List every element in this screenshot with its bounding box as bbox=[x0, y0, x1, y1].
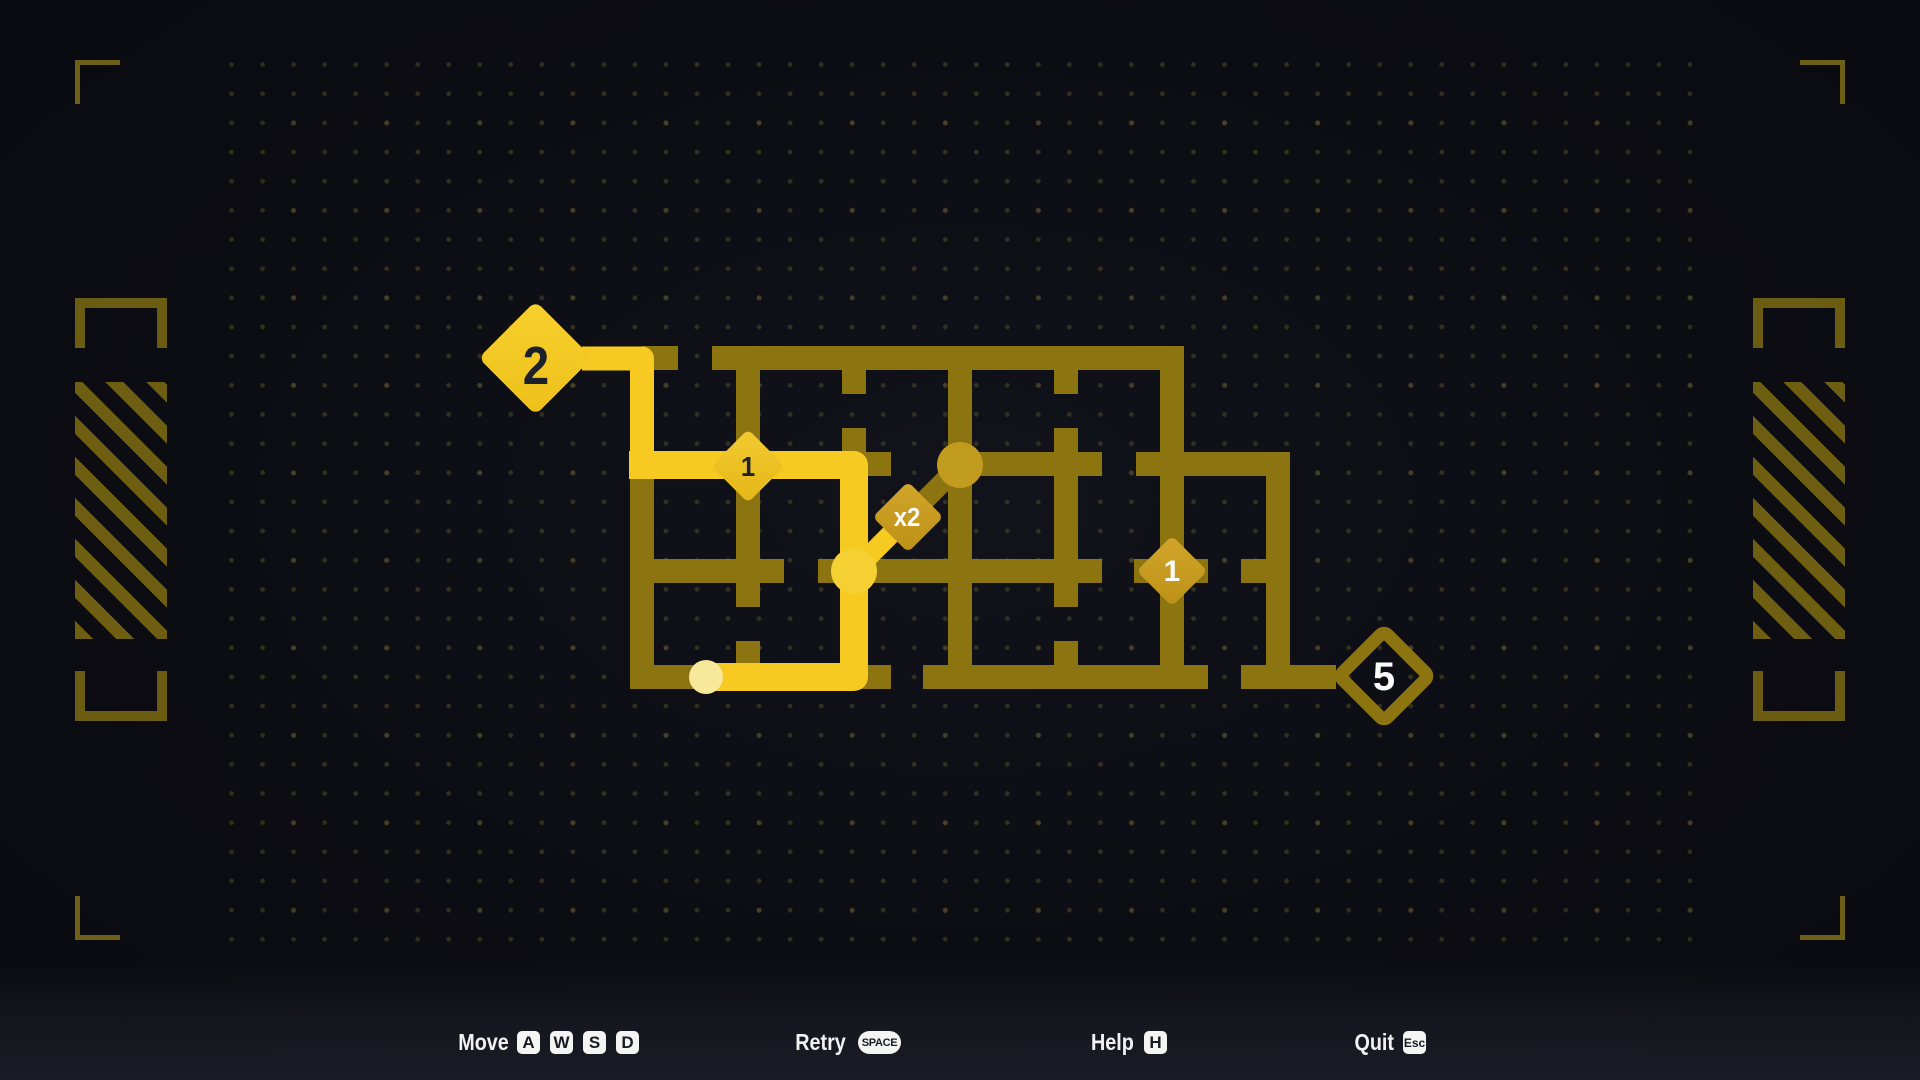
svg-text:x2: x2 bbox=[894, 503, 921, 532]
svg-text:1: 1 bbox=[741, 451, 755, 482]
svg-text:1: 1 bbox=[1164, 555, 1181, 588]
svg-text:5: 5 bbox=[1373, 655, 1395, 699]
svg-text:2: 2 bbox=[523, 335, 549, 396]
